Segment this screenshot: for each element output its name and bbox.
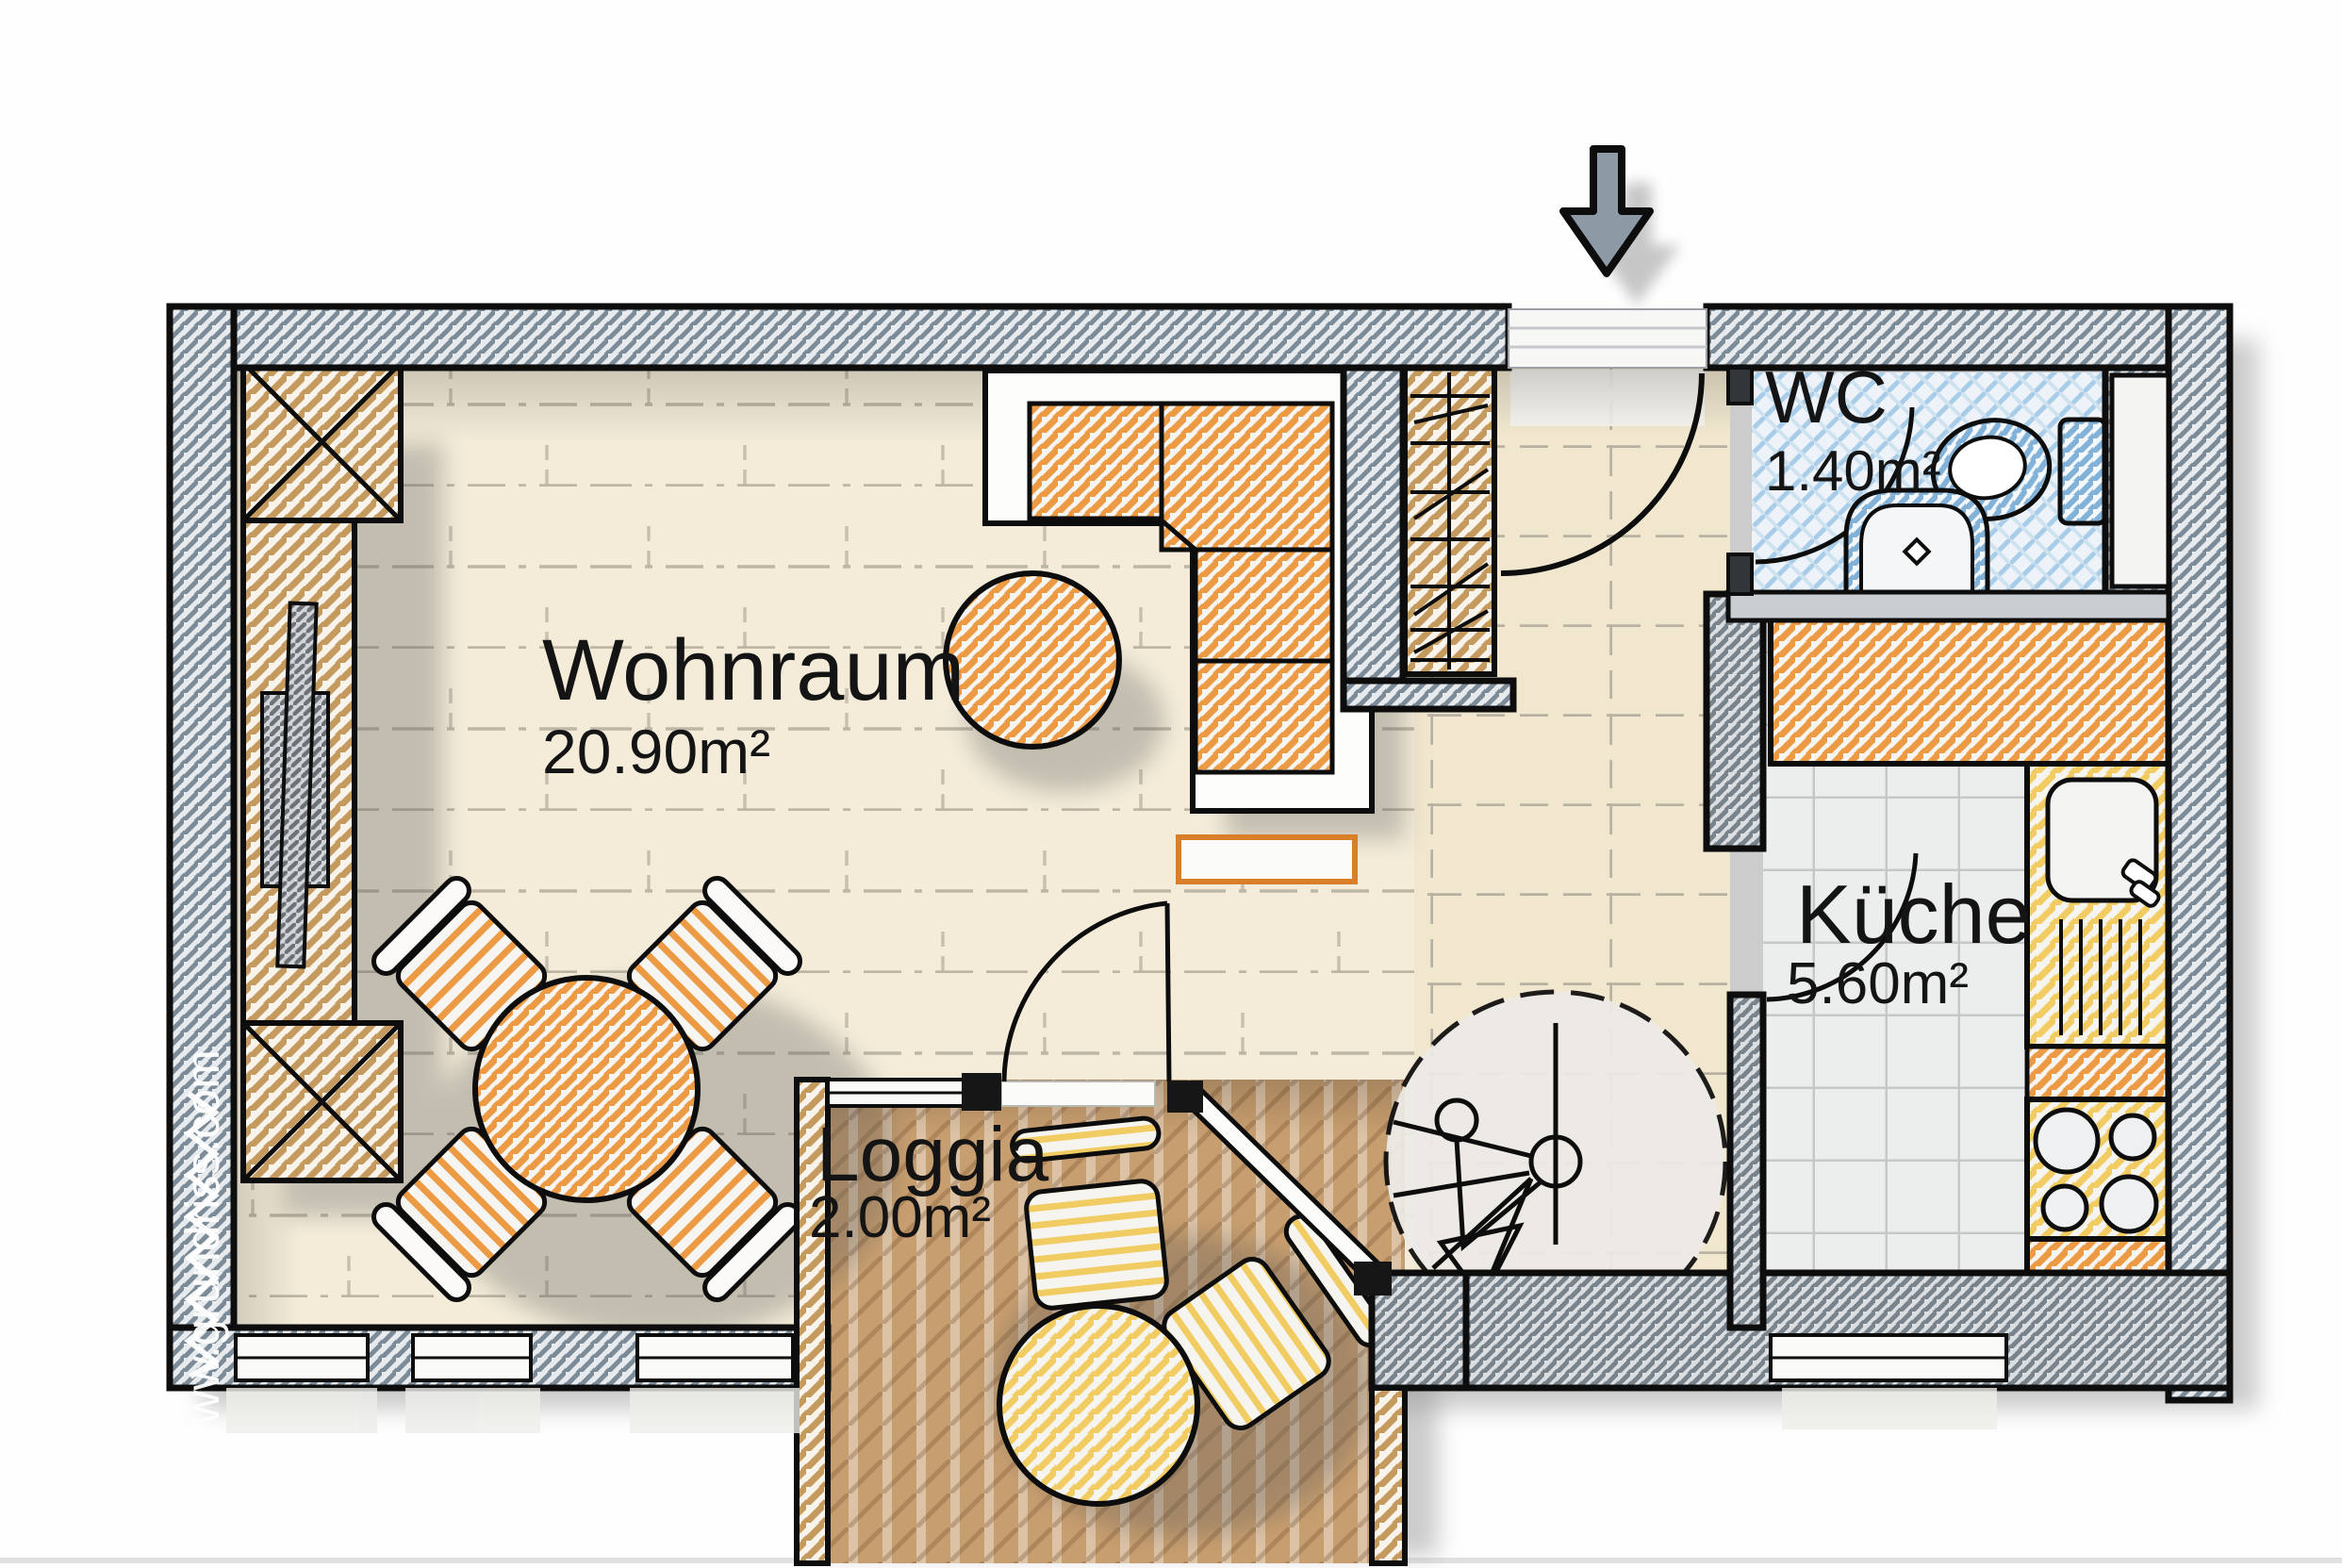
label-wohnraum-area: 20.90m² <box>542 717 770 786</box>
loggia-table <box>999 1306 1197 1504</box>
watermark: www.grundriss.com <box>176 1049 229 1459</box>
wall-kitchen-left-lower <box>1730 995 1763 1328</box>
wall-loggia-right <box>1372 1388 1405 1563</box>
window-sill-3 <box>630 1388 800 1433</box>
loggia-door-post-top <box>1167 1081 1203 1113</box>
entrance-threshold <box>1509 309 1707 368</box>
label-kueche-area: 5.60m² <box>1787 951 1969 1016</box>
hall-wardrobe <box>1405 368 1494 674</box>
loggia-door-post-bottom <box>1354 1262 1392 1296</box>
ottoman <box>946 573 1119 747</box>
label-wc-area: 1.40m² <box>1765 439 1941 503</box>
window-sill-1 <box>226 1388 377 1433</box>
loggia-window-post <box>962 1073 1001 1111</box>
window-sill-2 <box>405 1388 540 1433</box>
wc-duct-niche <box>2112 375 2169 586</box>
floorplan-drawing: Wohnraum 20.90m² WC 1.40m² Küche 5.60m² … <box>0 0 2342 1568</box>
sofa-seat-mid <box>1196 550 1332 661</box>
wall-right <box>2169 306 2230 1400</box>
window-sill-kitchen <box>1782 1388 1997 1429</box>
label-kueche: Küche <box>1796 867 2032 961</box>
loggia-door-leaf-closed <box>1167 903 1169 1081</box>
sofa-seat-corner <box>1162 404 1332 550</box>
label-loggia-area: 2.00m² <box>809 1185 991 1250</box>
wall-divider-stub <box>1344 681 1513 709</box>
dining-table <box>475 978 698 1200</box>
kitchen-counter-top <box>1771 613 2169 764</box>
label-wohnraum: Wohnraum <box>542 622 965 718</box>
loggia-threshold <box>1001 1081 1155 1106</box>
toilet-tank <box>2060 420 2105 523</box>
label-wc: WC <box>1765 355 1888 438</box>
wall-top-left <box>170 306 1509 368</box>
wall-hall-kitchen-upper <box>1707 594 1763 849</box>
sofa-seat-left <box>1030 404 1162 519</box>
wall-wc-bottom <box>1728 592 2169 620</box>
kitchen-counter-strip <box>2027 1047 2169 1099</box>
wall-living-hall-divider <box>1344 368 1403 709</box>
sofa-seat-low <box>1196 661 1332 772</box>
floorplan-page: Wohnraum 20.90m² WC 1.40m² Küche 5.60m² … <box>0 0 2342 1568</box>
sofa-side-shelf <box>1179 837 1355 882</box>
